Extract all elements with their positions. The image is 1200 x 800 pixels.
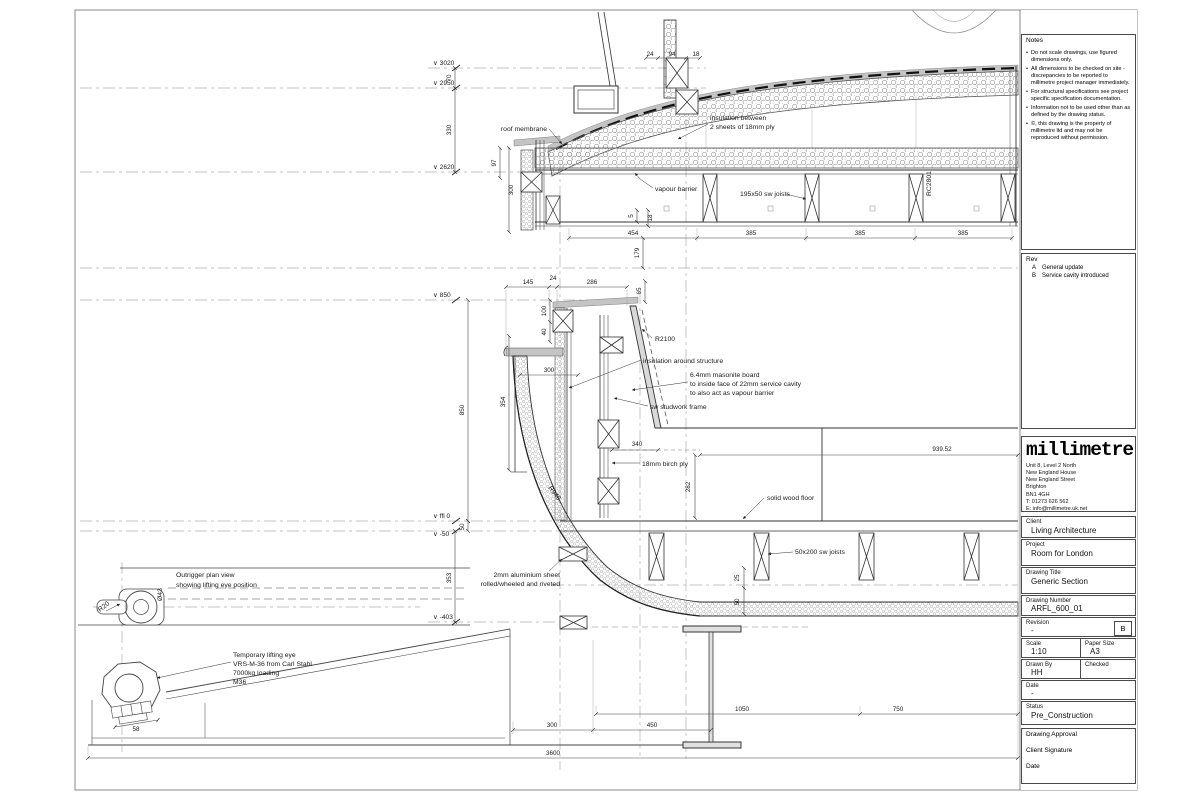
scale-cell: Scale 1:10 <box>1022 639 1080 657</box>
annotation-birch-ply: 18mm birch ply <box>642 461 689 468</box>
dim-330: 330 <box>446 124 453 135</box>
annotation-outrigger-2: showing lifting eye position <box>176 582 257 589</box>
datum-grid-lines <box>80 68 1018 770</box>
dim-5: 5 <box>628 214 635 218</box>
floor-joists <box>649 533 979 580</box>
status-box: Status Pre_Construction <box>1021 701 1136 725</box>
level-850: ∨ 850 <box>433 292 451 299</box>
drawn-checked-box: Drawn By HH Checked <box>1021 659 1136 679</box>
dim-70: 70 <box>446 74 453 82</box>
dim-353: 353 <box>446 572 453 583</box>
wall-insulation <box>555 308 565 520</box>
annotation-masonite-3: to also act as vapour barrier <box>690 390 775 397</box>
rev-id: B <box>1026 273 1042 279</box>
dim-300-b: 300 <box>547 722 558 729</box>
dim-145: 145 <box>523 279 534 286</box>
dim-50-level: 50 <box>459 523 466 531</box>
dim-25: 25 <box>734 574 741 582</box>
annotation-lifting-2: VRS-M-36 from Carl Stahl <box>233 661 312 668</box>
dim-850: 850 <box>459 404 466 415</box>
floor-assembly <box>560 521 1018 580</box>
dim-18-b: 18 <box>647 214 654 222</box>
annotation-195x50-joists: 195x50 sw joists <box>740 191 790 198</box>
checked-cell: Checked <box>1080 660 1135 678</box>
note-item: Information not to be used other than as… <box>1026 105 1131 119</box>
client-label: Client <box>1026 519 1131 525</box>
annotation-masonite-1: 6.4mm masonite board <box>690 372 760 379</box>
drawn-by-cell: Drawn By HH <box>1022 660 1080 678</box>
joist-box <box>805 174 819 222</box>
dim-3600: 3600 <box>546 750 561 757</box>
section-drawing: ∨ 3020 ∨ 2950 ∨ 2620 ∨ 850 ∨ ffl 0 ∨ -50… <box>0 0 1200 800</box>
note-item: ©, this drawing is the property of milli… <box>1026 121 1131 142</box>
window-sill <box>506 348 563 356</box>
dim-385-b: 385 <box>855 230 866 237</box>
annotation-rc2801: RC2801 <box>926 171 933 196</box>
annotation-wood-floor: solid wood floor <box>767 495 815 502</box>
annotation-vapour-barrier: vapour barrier <box>655 186 698 193</box>
dim-97: 97 <box>491 159 498 167</box>
annotation-outrigger-1: Outrigger plan view <box>176 572 235 579</box>
annotation-r2100: R2100 <box>655 336 675 343</box>
revision-history-box: Rev A General update B Service cavity in… <box>1021 253 1136 429</box>
dim-750: 750 <box>893 706 904 713</box>
level-2620: ∨ 2620 <box>433 164 455 171</box>
annotation-dia43: Ø43 <box>157 588 164 601</box>
annotation-alu-1: 2mm aluminium sheet <box>494 572 561 579</box>
level-minus403: ∨ -403 <box>433 614 453 621</box>
annotation-lifting-1: Temporary lifting eye <box>233 652 296 659</box>
annotation-studwork: sw studwork frame <box>650 404 707 411</box>
date-box: Date - <box>1021 680 1136 700</box>
checked-label: Checked <box>1085 662 1135 668</box>
level-ffl0: ∨ ffl 0 <box>433 513 450 520</box>
annotation-insulation-structure: insulation around structure <box>643 358 723 365</box>
drawing-number-value: ARFL_600_01 <box>1026 604 1131 613</box>
level-labels: ∨ 3020 ∨ 2950 ∨ 2620 ∨ 850 ∨ ffl 0 ∨ -50… <box>433 60 455 621</box>
dim-340: 340 <box>632 441 643 448</box>
rev-heading: Rev <box>1026 256 1131 263</box>
rev-id: A <box>1026 265 1042 271</box>
drawing-title-box: Drawing Title Generic Section <box>1021 567 1136 594</box>
client-value: Living Architecture <box>1026 526 1131 535</box>
rev-desc: General update <box>1042 265 1131 271</box>
dim-50-deck: 50 <box>734 598 741 606</box>
status-label: Status <box>1026 704 1131 710</box>
client-signature-label: Client Signature <box>1026 747 1131 754</box>
approval-box: Drawing Approval Client Signature Date <box>1021 728 1136 784</box>
dim-65: 65 <box>636 287 643 295</box>
rev-row: A General update <box>1026 265 1131 271</box>
dim-385-c: 385 <box>958 230 969 237</box>
paper-size-cell: Paper Size A3 <box>1080 639 1135 657</box>
joist-box <box>1001 174 1015 222</box>
notes-box: Notes Do not scale drawings, use figured… <box>1021 34 1136 250</box>
roof-insulation-flat <box>535 148 1018 168</box>
dim-100: 100 <box>541 305 548 316</box>
company-address: Unit 8, Level 2 North New England House … <box>1026 463 1131 513</box>
level-ticks <box>452 65 460 625</box>
annotation-lifting-4: M36 <box>233 679 246 686</box>
level-minus50: ∨ -50 <box>433 531 450 538</box>
lifting-eye-plan-ring <box>125 591 157 623</box>
dim-1050: 1050 <box>735 706 750 713</box>
drawing-title-value: Generic Section <box>1026 577 1131 586</box>
dim-179: 179 <box>634 247 641 258</box>
outrigger-plan-view <box>78 568 470 625</box>
dim-939-52: 939.52 <box>932 446 952 453</box>
lifting-eye-hole <box>115 674 143 702</box>
level-3020: ∨ 3020 <box>433 60 455 67</box>
joist-box <box>703 174 717 222</box>
dim-18-top: 18 <box>692 51 700 58</box>
annotation-lifting-3: 7000kg loading <box>233 670 279 677</box>
seat-rail-cap <box>553 297 638 308</box>
rev-row: B Service cavity introduced <box>1026 273 1131 279</box>
ceiling-joists <box>664 174 1015 222</box>
outrigger-elevation <box>88 629 683 745</box>
annotation-50x200-joists: 50x200 sw joists <box>795 549 845 556</box>
dim-450: 450 <box>647 722 658 729</box>
kerb-blocking <box>559 547 587 629</box>
note-item: All dimensions to be checked on site - d… <box>1026 66 1131 87</box>
annotation-alu-2: rolled/wheeled and riveted <box>481 581 561 588</box>
project-label: Project <box>1026 542 1131 548</box>
title-block: Notes Do not scale drawings, use figured… <box>1021 10 1137 790</box>
scale-value: 1:10 <box>1026 647 1076 656</box>
drawing-title-label: Drawing Title <box>1026 570 1131 576</box>
date-value: - <box>1026 689 1131 698</box>
rev-desc: Service cavity introduced <box>1042 273 1131 279</box>
project-value: Room for London <box>1026 549 1131 558</box>
dim-24-b: 24 <box>549 275 557 282</box>
dim-40: 40 <box>541 328 548 336</box>
mast-assembly <box>574 12 698 114</box>
annotation-insulation-between-1: insulation between <box>710 115 767 122</box>
annotation-roof-membrane: roof membrane <box>501 126 547 133</box>
drawn-by-value: HH <box>1026 668 1076 677</box>
drawing-sheet: ∨ 3020 ∨ 2950 ∨ 2620 ∨ 850 ∨ ffl 0 ∨ -50… <box>0 0 1200 800</box>
client-box: Client Living Architecture <box>1021 516 1136 538</box>
status-value: Pre_Construction <box>1026 711 1131 720</box>
dim-282: 282 <box>685 481 692 492</box>
drawing-number-box: Drawing Number ARFL_600_01 <box>1021 595 1136 616</box>
joist-box <box>909 174 923 222</box>
company-logo-box: millimetre Unit 8, Level 2 North New Eng… <box>1021 436 1136 512</box>
notes-heading: Notes <box>1026 37 1131 44</box>
leader-lines <box>106 124 806 678</box>
scale-paper-box: Scale 1:10 Paper Size A3 <box>1021 638 1136 658</box>
note-item: Do not scale drawings, use figured dimen… <box>1026 50 1131 64</box>
company-logo: millimetre <box>1026 439 1131 461</box>
annotation-masonite-2: to inside face of 22mm service cavity <box>690 381 802 388</box>
dim-94: 94 <box>668 51 676 58</box>
revision-box: Revision - B <box>1021 617 1136 637</box>
dim-24-top: 24 <box>646 51 654 58</box>
note-item: For structural specifications see projec… <box>1026 89 1131 103</box>
dim-286: 286 <box>587 279 598 286</box>
approval-date-label: Date <box>1026 763 1131 770</box>
dim-385-a: 385 <box>746 230 757 237</box>
annotation-insulation-between-2: 2 sheets of 18mm ply <box>710 124 775 131</box>
paper-size-value: A3 <box>1085 647 1135 656</box>
mid-wall-assembly <box>504 297 1018 521</box>
dim-300-roof: 300 <box>508 184 515 195</box>
dim-354: 354 <box>500 396 507 407</box>
current-revision-badge: B <box>1114 621 1132 636</box>
drawing-approval-label: Drawing Approval <box>1026 731 1131 738</box>
project-box: Project Room for London <box>1021 539 1136 566</box>
dim-454: 454 <box>628 230 639 237</box>
dim-58: 58 <box>132 726 140 733</box>
dim-300-wall: 300 <box>544 367 555 374</box>
